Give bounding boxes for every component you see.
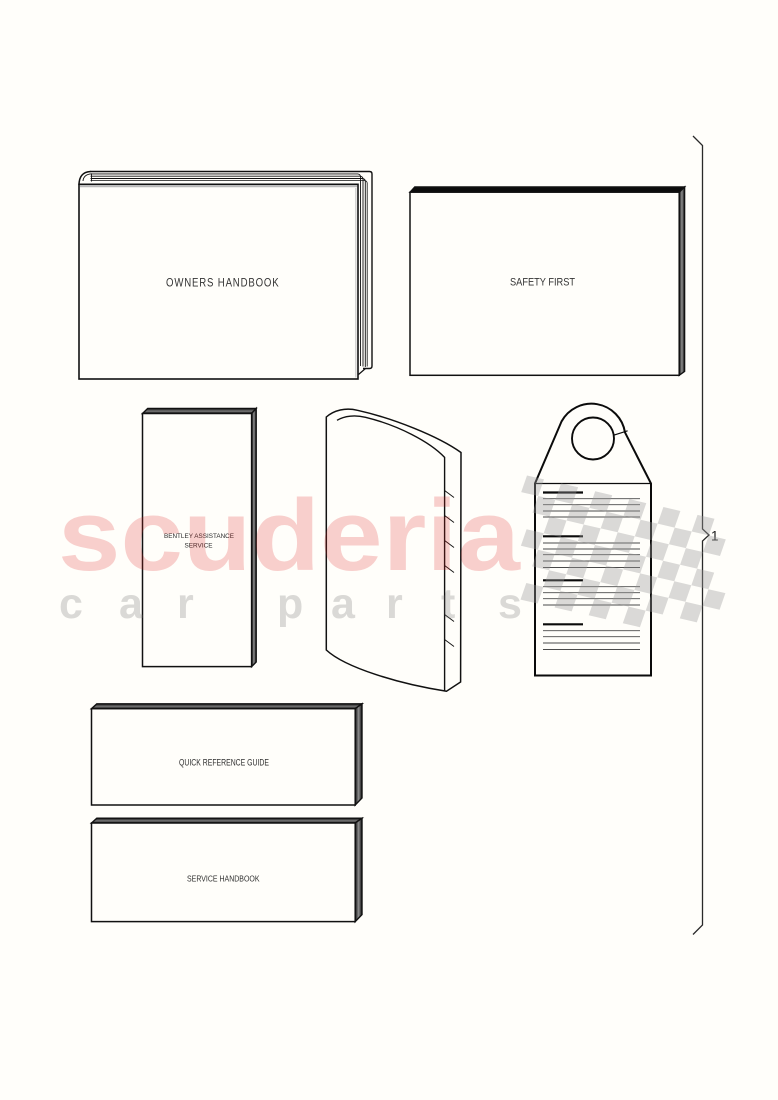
svg-text:s: s bbox=[498, 580, 522, 628]
svg-text:SAFETY FIRST: SAFETY FIRST bbox=[510, 277, 575, 289]
svg-text:r: r bbox=[177, 580, 194, 628]
svg-text:OWNERS HANDBOOK: OWNERS HANDBOOK bbox=[166, 277, 280, 290]
svg-text:SERVICE HANDBOOK: SERVICE HANDBOOK bbox=[187, 874, 260, 884]
svg-text:QUICK REFERENCE GUIDE: QUICK REFERENCE GUIDE bbox=[179, 758, 269, 768]
svg-text:scuderia: scuderia bbox=[58, 480, 521, 592]
svg-text:a: a bbox=[331, 580, 356, 628]
svg-text:c: c bbox=[59, 580, 83, 628]
svg-text:t: t bbox=[441, 580, 455, 628]
svg-text:a: a bbox=[119, 580, 144, 628]
svg-text:p: p bbox=[277, 580, 303, 628]
svg-text:r: r bbox=[386, 580, 403, 628]
